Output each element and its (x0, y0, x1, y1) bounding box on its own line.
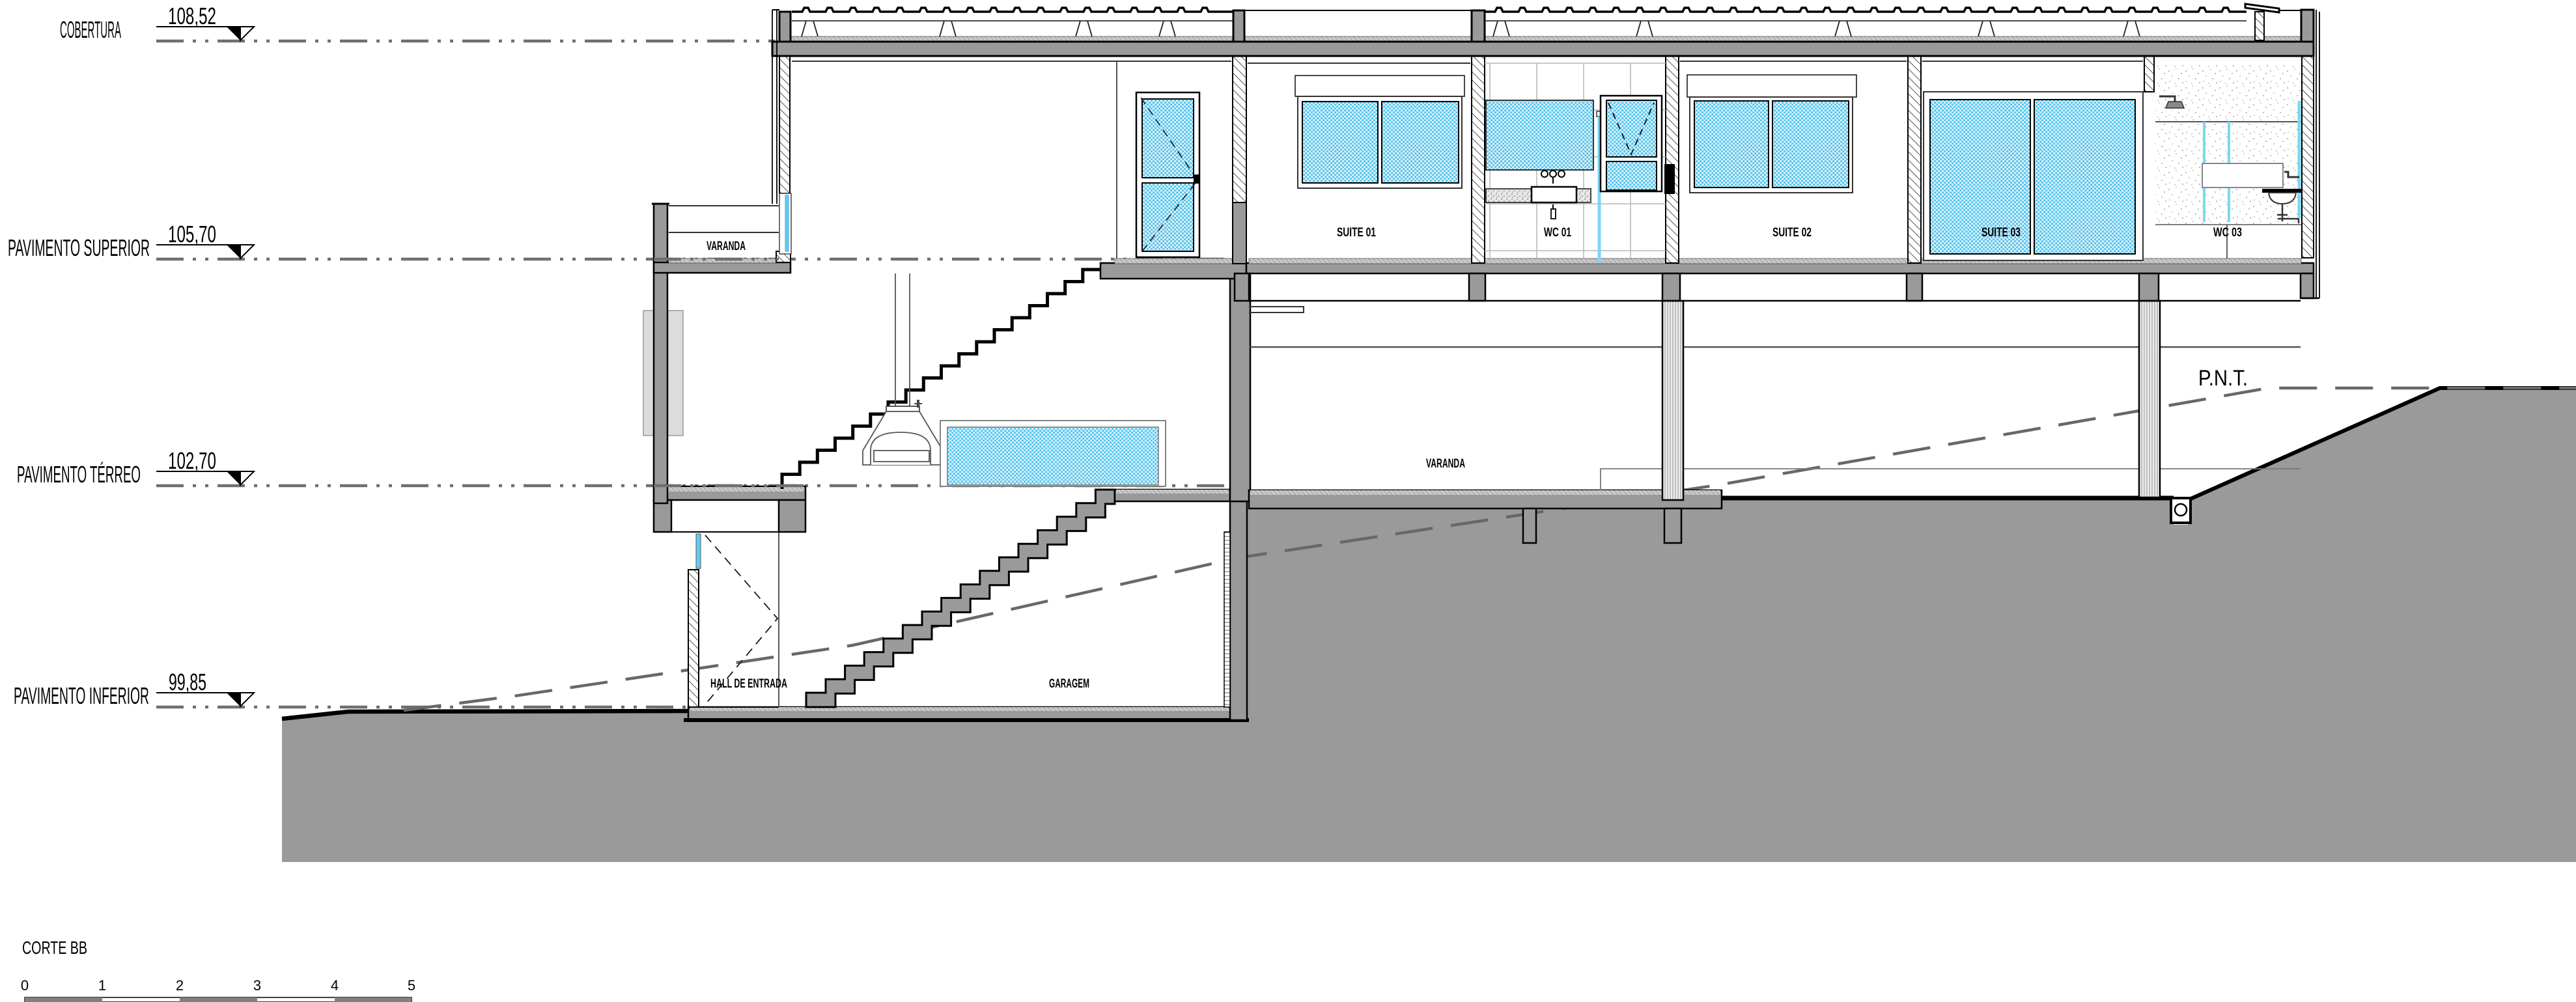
svg-text:VARANDA: VARANDA (1426, 457, 1465, 471)
svg-text:HALL DE ENTRADA: HALL DE ENTRADA (710, 677, 787, 691)
svg-text:102,70: 102,70 (168, 447, 216, 474)
svg-text:SUITE 03: SUITE 03 (1981, 226, 2021, 240)
svg-text:WC 03: WC 03 (2213, 226, 2242, 240)
svg-text:SUITE 02: SUITE 02 (1772, 226, 1812, 240)
svg-text:105,70: 105,70 (168, 221, 216, 247)
svg-text:2: 2 (176, 977, 184, 994)
svg-text:GARAGEM: GARAGEM (1049, 677, 1089, 691)
svg-text:0: 0 (21, 977, 29, 994)
svg-text:108,52: 108,52 (168, 3, 216, 29)
svg-text:4: 4 (331, 977, 339, 994)
svg-text:P.N.T.: P.N.T. (2198, 366, 2248, 391)
svg-text:PAVIMENTO INFERIOR: PAVIMENTO INFERIOR (14, 682, 149, 709)
svg-text:PAVIMENTO SUPERIOR: PAVIMENTO SUPERIOR (8, 234, 150, 261)
svg-text:WC 01: WC 01 (1544, 226, 1571, 240)
svg-text:CORTE BB: CORTE BB (22, 938, 87, 958)
svg-text:VARANDA: VARANDA (707, 240, 746, 253)
svg-text:3: 3 (253, 977, 261, 994)
svg-text:5: 5 (408, 977, 415, 994)
svg-text:PAVIMENTO TÉRREO: PAVIMENTO TÉRREO (17, 461, 141, 488)
svg-text:SUITE 01: SUITE 01 (1337, 226, 1376, 240)
svg-text:1: 1 (98, 977, 106, 994)
svg-text:99,85: 99,85 (169, 669, 206, 695)
svg-text:COBERTURA: COBERTURA (60, 16, 121, 43)
